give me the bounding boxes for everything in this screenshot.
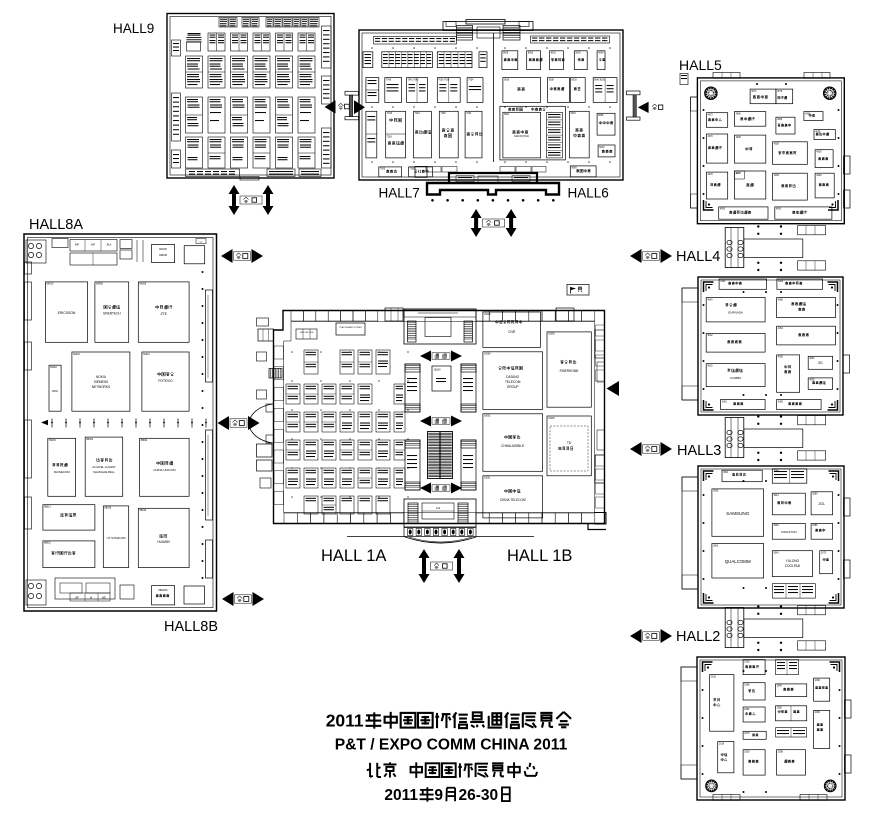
svg-text:HALL3: HALL3: [677, 443, 721, 459]
svg-text:FIBERHOME: FIBERHOME: [560, 369, 579, 373]
svg-text:8A010: 8A010: [47, 283, 54, 286]
svg-text:4051: 4051: [809, 358, 815, 360]
svg-text:16005: 16005: [548, 418, 555, 420]
svg-text:HALL6: HALL6: [568, 186, 609, 201]
svg-text:TELECOM: TELECOM: [505, 380, 521, 384]
svg-text:MACFQYAH: MACFQYAH: [514, 134, 529, 138]
svg-text:CHINA TELECOM: CHINA TELECOM: [500, 498, 526, 502]
svg-text:2038: 2038: [778, 752, 784, 754]
svg-text:4040: 4040: [707, 299, 713, 301]
svg-text:EURNADA: EURNADA: [728, 311, 743, 315]
svg-text:ERICSSON: ERICSSON: [58, 311, 76, 315]
svg-text:8049: 8049: [598, 53, 604, 55]
svg-text:CHINA UNICOM: CHINA UNICOM: [153, 468, 176, 472]
svg-text:4016: 4016: [707, 365, 713, 367]
svg-text:GRENTECH: GRENTECH: [103, 312, 122, 316]
svg-text:ALCATEL-LUCENT: ALCATEL-LUCENT: [92, 465, 116, 469]
svg-text:8089: 8089: [572, 168, 578, 170]
svg-text:HALL7: HALL7: [379, 186, 420, 201]
svg-text:HALL2: HALL2: [676, 629, 720, 645]
svg-text:WE: WE: [102, 598, 106, 600]
svg-text:HALL 1A: HALL 1A: [321, 547, 386, 565]
svg-text:4078: 4078: [708, 174, 714, 176]
svg-text:16008: 16008: [484, 354, 491, 356]
svg-text:8038: 8038: [549, 79, 555, 81]
svg-text:2011: 2011: [326, 711, 364, 731]
svg-text:DATANG: DATANG: [506, 375, 519, 379]
svg-text:8006: 8006: [528, 53, 534, 55]
svg-text:3075: 3075: [821, 553, 827, 555]
svg-text:YULONG: YULONG: [786, 559, 800, 563]
svg-text:3043: 3043: [774, 553, 780, 555]
svg-text:8045 8020: 8045 8020: [594, 79, 606, 81]
svg-text:4091: 4091: [776, 209, 782, 211]
svg-text:NETWORKS: NETWORKS: [92, 385, 110, 389]
svg-text:4009: 4009: [774, 175, 780, 177]
svg-text:4039: 4039: [816, 175, 822, 177]
svg-text:1308 1306 1304: 1308 1306 1304: [300, 332, 314, 334]
svg-text:8B015: 8B015: [44, 543, 51, 545]
svg-text:HALL8B: HALL8B: [164, 619, 218, 635]
svg-text:2078: 2078: [744, 733, 750, 735]
svg-text:AIR: AIR: [91, 244, 95, 247]
svg-text:8008: 8008: [503, 53, 509, 55]
svg-text:7045: 7045: [386, 79, 392, 81]
svg-text:KINGSTON: KINGSTON: [781, 530, 797, 534]
svg-text:7001: 7001: [466, 113, 472, 115]
svg-text:GROUP: GROUP: [507, 385, 519, 389]
svg-text:2094: 2094: [777, 686, 783, 688]
svg-text:4005: 4005: [778, 401, 784, 403]
svg-text:3001: 3001: [723, 472, 729, 474]
svg-text:4036: 4036: [816, 152, 822, 154]
svg-text:8030: 8030: [576, 53, 582, 55]
svg-text:4028: 4028: [774, 144, 780, 146]
svg-text:HALL9: HALL9: [113, 21, 154, 36]
svg-text:4072: 4072: [708, 115, 714, 117]
svg-text:CNR: CNR: [508, 330, 516, 334]
svg-text:BLA: BLA: [107, 244, 112, 247]
svg-text:SAMSUNG: SAMSUNG: [726, 511, 750, 516]
svg-text:HALL4: HALL4: [676, 249, 720, 265]
svg-text:SIEMENS: SIEMENS: [94, 380, 108, 384]
svg-text:8001: 8001: [504, 114, 510, 116]
svg-text:8A002: 8A002: [73, 353, 80, 356]
svg-text:ZOL: ZOL: [818, 502, 825, 506]
svg-text:2088: 2088: [744, 685, 750, 687]
svg-text:HALL8A: HALL8A: [29, 217, 83, 233]
svg-text:6215: 6215: [571, 113, 577, 115]
svg-text:4055: 4055: [809, 380, 815, 382]
svg-text:4074: 4074: [751, 91, 757, 93]
svg-text:3080: 3080: [812, 494, 818, 496]
svg-text:16009: 16009: [548, 334, 555, 336]
svg-text:16001: 16001: [484, 478, 491, 480]
svg-text:QUALCOMM: QUALCOMM: [725, 559, 751, 564]
svg-text:2116: 2116: [744, 661, 750, 663]
svg-text:CHINA-MOBILE: CHINA-MOBILE: [501, 444, 524, 448]
svg-text:RAISECOM: RAISECOM: [54, 470, 71, 474]
svg-text:7016: 7016: [387, 113, 393, 115]
svg-text:4042: 4042: [707, 335, 713, 337]
svg-text:ZTE: ZTE: [160, 312, 167, 316]
svg-text:4056: 4056: [777, 119, 783, 121]
svg-text:84F: 84F: [75, 244, 80, 247]
svg-text:POTEVIO: POTEVIO: [158, 379, 173, 383]
svg-text:COMBA: COMBA: [730, 376, 741, 380]
svg-text:COOLPAD: COOLPAD: [785, 564, 801, 568]
svg-text:HALL 1B: HALL 1B: [507, 547, 572, 565]
svg-text:4061: 4061: [778, 328, 784, 330]
svg-text:26-30: 26-30: [459, 787, 499, 804]
svg-text:4080: 4080: [778, 299, 784, 301]
svg-text:8031: 8031: [551, 53, 557, 55]
svg-text:3085: 3085: [812, 525, 818, 527]
svg-text:2028: 2028: [744, 752, 750, 754]
svg-text:4020: 4020: [778, 357, 784, 359]
svg-text:8B002: 8B002: [86, 439, 93, 441]
svg-text:7041 7042: 7041 7042: [408, 79, 420, 81]
svg-text:WF: WF: [75, 598, 79, 600]
svg-text:4073: 4073: [735, 173, 741, 175]
svg-text:7036 7038: 7036 7038: [438, 79, 450, 81]
svg-text:4048: 4048: [736, 137, 742, 139]
svg-text:8A018: 8A018: [50, 366, 57, 369]
svg-text:3083: 3083: [774, 525, 780, 527]
svg-text:2100: 2100: [711, 676, 717, 678]
svg-text:8A001: 8A001: [143, 353, 150, 356]
svg-text:P&T / EXPO COMM CHINA 2011: P&T / EXPO COMM CHINA 2011: [335, 737, 568, 754]
svg-text:7180: 7180: [441, 113, 447, 115]
svg-text:4076: 4076: [777, 91, 783, 93]
svg-text:8A018: 8A018: [159, 247, 167, 251]
svg-text:2018: 2018: [719, 743, 725, 745]
svg-text:UT STARCOM: UT STARCOM: [107, 536, 126, 540]
svg-text:4070: 4070: [708, 136, 714, 138]
svg-text:HUAWEI: HUAWEI: [157, 540, 170, 544]
svg-text:8028: 8028: [572, 79, 578, 81]
svg-text:9: 9: [434, 787, 443, 804]
svg-text:4066: 4066: [736, 113, 742, 115]
svg-text:2060: 2060: [815, 712, 821, 714]
svg-text:8B028: 8B028: [105, 508, 112, 510]
svg-text:2086: 2086: [744, 709, 750, 711]
svg-text:1B100: 1B100: [434, 369, 442, 372]
svg-text:PLACON ANTI-COPIES: PLACON ANTI-COPIES: [339, 326, 362, 329]
svg-text:4103: 4103: [778, 281, 784, 283]
svg-text:4001: 4001: [722, 401, 728, 403]
svg-text:8048: 8048: [599, 147, 605, 149]
svg-text:SHANGHAI-BELL: SHANGHAI-BELL: [93, 470, 115, 474]
svg-text:8036: 8036: [504, 79, 510, 81]
svg-text:7034: 7034: [468, 79, 474, 81]
svg-text:3003: 3003: [713, 545, 719, 547]
svg-text:7003: 7003: [380, 169, 386, 171]
svg-text:8A008: 8A008: [96, 283, 103, 286]
svg-text:H9DIM: H9DIM: [159, 253, 167, 257]
svg-text:NOKIA: NOKIA: [96, 375, 107, 379]
svg-text:7012: 7012: [415, 113, 421, 115]
svg-text:RIM: RIM: [52, 389, 58, 393]
svg-text:2090: 2090: [815, 680, 821, 682]
svg-text:3044: 3044: [774, 495, 780, 497]
svg-text:7018: 7018: [387, 137, 393, 139]
svg-text:3G: 3G: [818, 361, 823, 365]
svg-text:TD: TD: [567, 441, 572, 445]
svg-text:1A2: 1A2: [436, 507, 441, 510]
svg-text:4101: 4101: [720, 281, 726, 283]
svg-text:HALL5: HALL5: [679, 57, 722, 73]
svg-text:8B013: 8B013: [44, 507, 51, 509]
svg-text:2082: 2082: [777, 708, 783, 710]
svg-text:8B001: 8B001: [141, 440, 148, 442]
svg-text:4093: 4093: [720, 209, 726, 211]
svg-text:8B018S: 8B018S: [159, 589, 168, 592]
svg-text:8B030: 8B030: [140, 510, 147, 512]
svg-text:3030: 3030: [713, 491, 719, 493]
svg-text:8S003: 8S003: [49, 440, 56, 442]
svg-text:16010: 16010: [484, 314, 491, 316]
svg-text:2011: 2011: [384, 787, 418, 804]
svg-text:8080: 8080: [598, 115, 604, 117]
svg-text:8A006: 8A006: [140, 283, 147, 286]
svg-text:16002: 16002: [484, 416, 491, 418]
